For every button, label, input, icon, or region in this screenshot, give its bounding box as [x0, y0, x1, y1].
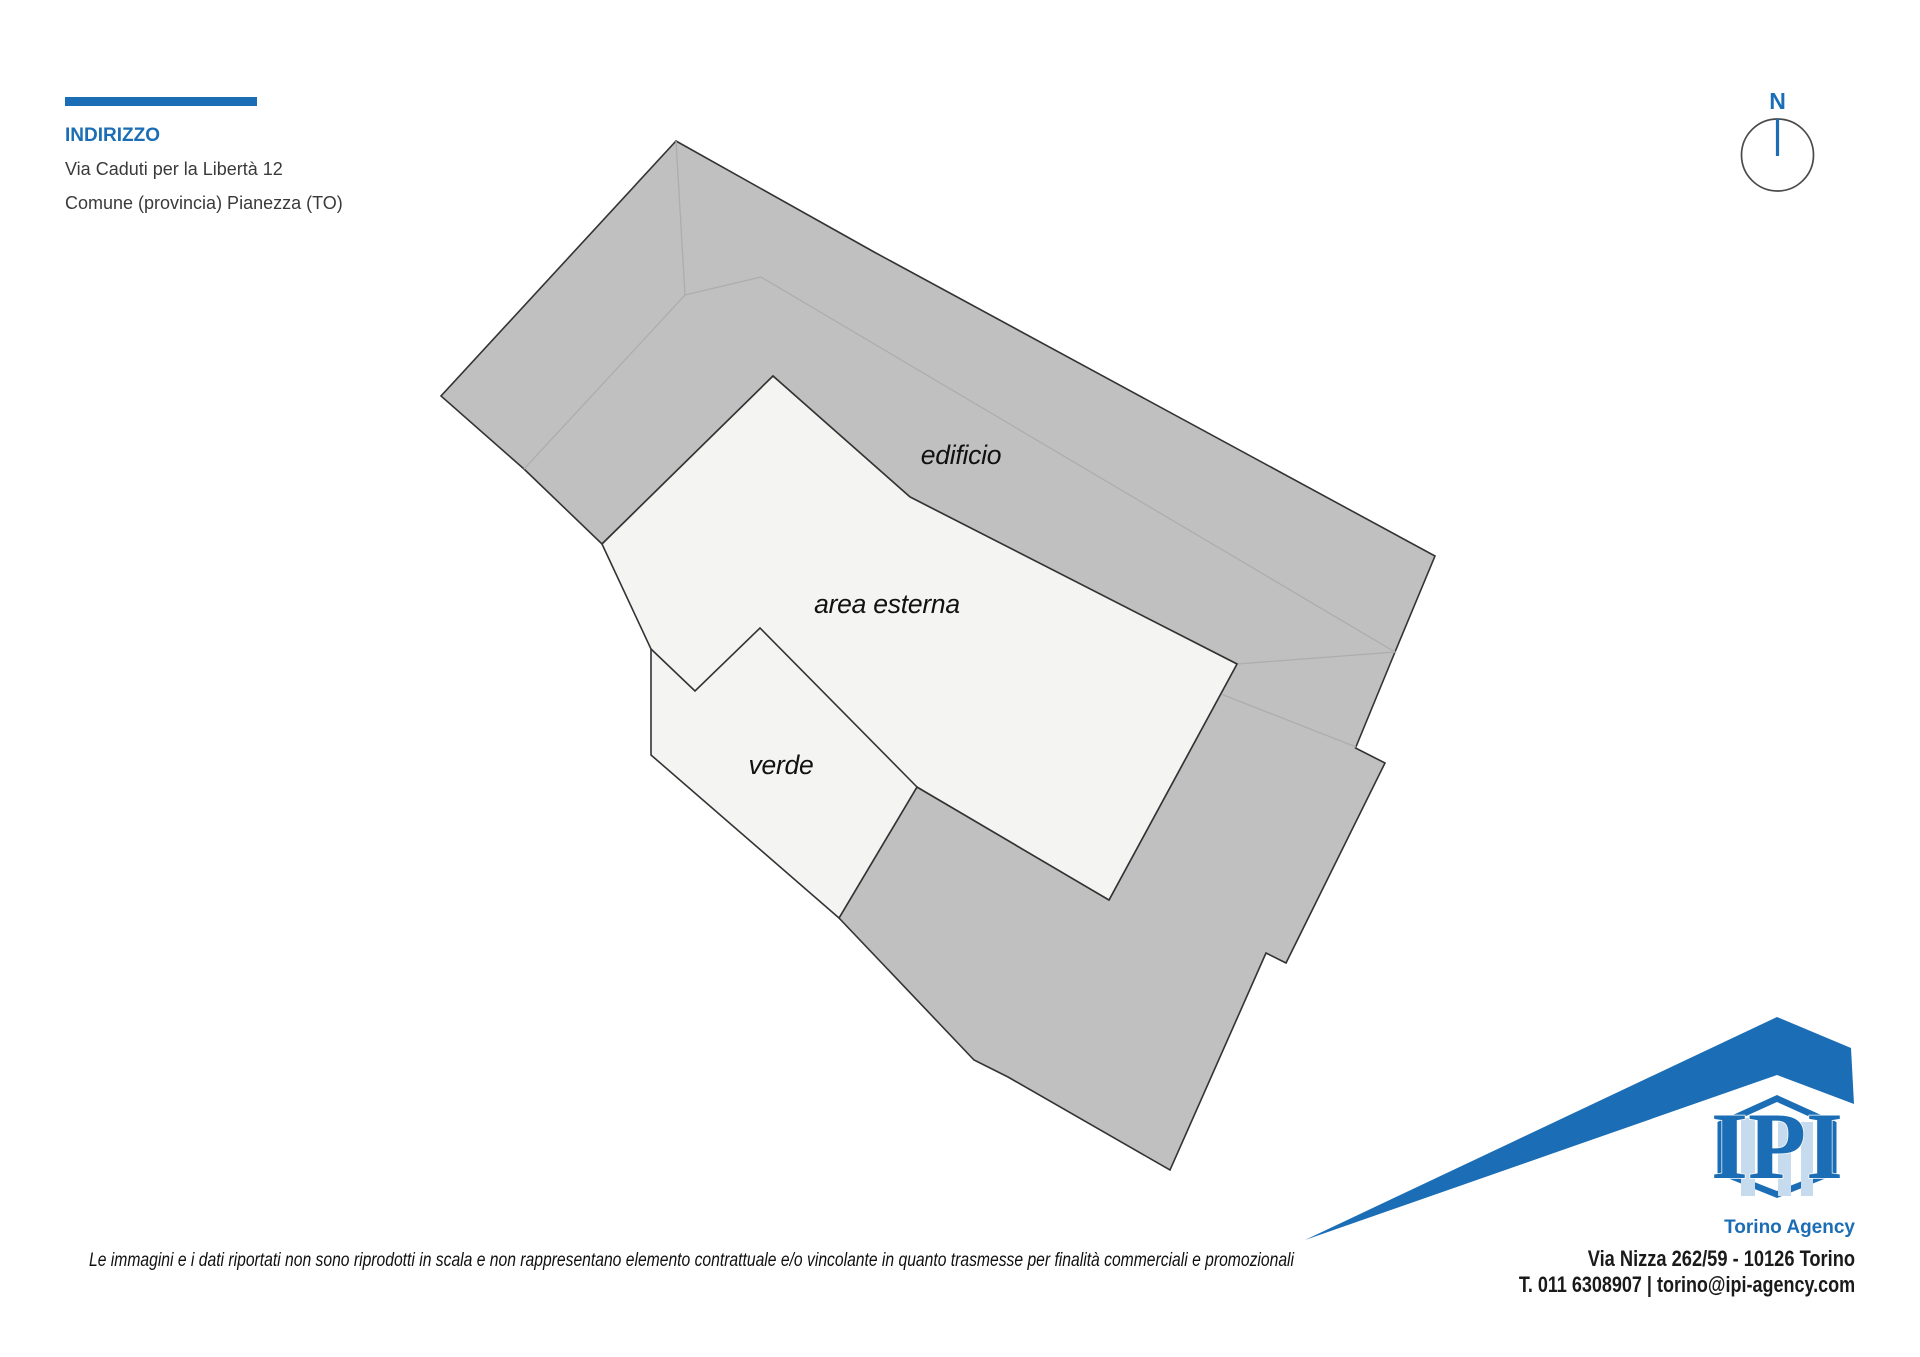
- svg-text:N: N: [1769, 88, 1786, 114]
- svg-text:IPI: IPI: [1711, 1093, 1843, 1199]
- svg-text:verde: verde: [748, 750, 813, 780]
- svg-text:area esterna: area esterna: [814, 589, 960, 619]
- svg-text:edificio: edificio: [921, 440, 1002, 470]
